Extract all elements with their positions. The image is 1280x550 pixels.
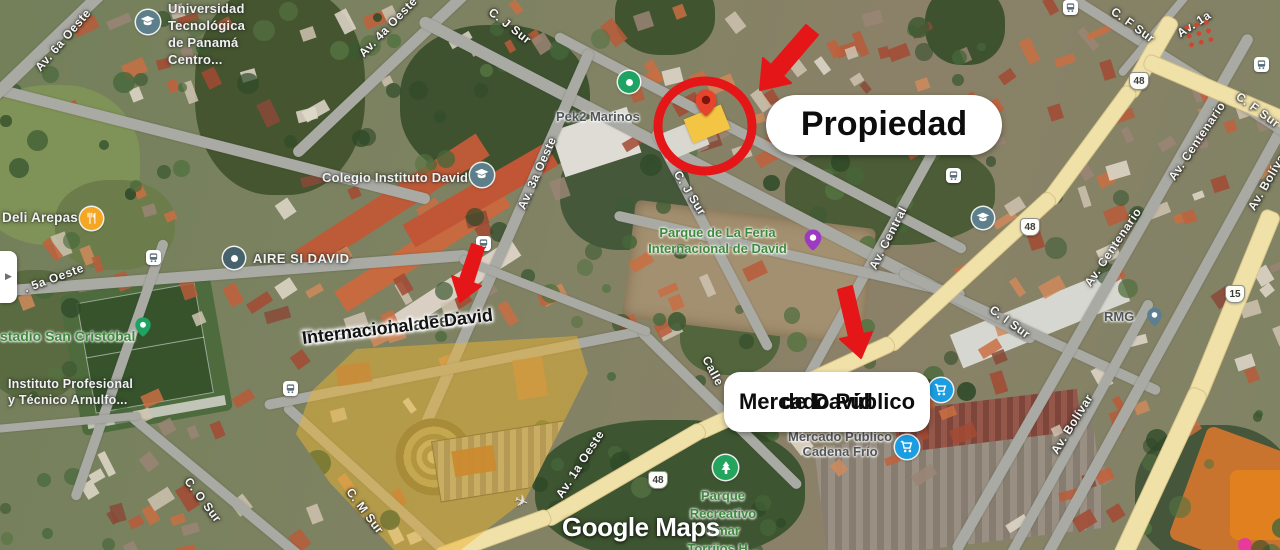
poi-line: Centro... (168, 51, 245, 68)
restaurant-icon[interactable] (80, 207, 103, 230)
poi-label-pek2-marinos[interactable]: Pek2 Marinos (556, 109, 640, 124)
bus-stop-icon[interactable] (146, 250, 161, 265)
bus-stop-icon[interactable] (946, 168, 961, 183)
road-segment (1188, 209, 1280, 402)
google-maps-watermark: Google Maps (562, 512, 720, 543)
bus-stop-icon[interactable] (283, 381, 298, 396)
property-pin-icon (691, 83, 721, 123)
poi-label-rmg[interactable]: RMG (1104, 309, 1134, 324)
shopping-cart-icon[interactable] (895, 435, 919, 459)
bus-stop-icon[interactable] (1063, 0, 1078, 15)
propiedad-label: Propiedad (801, 105, 967, 144)
poi-label-instituto-profesional[interactable]: Instituto Profesional y Técnico Arnulfo.… (8, 376, 133, 408)
mercado-line: de David (781, 389, 873, 414)
school-icon[interactable] (136, 10, 160, 34)
poi-label-aire-si-david[interactable]: AIRE SI DAVID (253, 251, 350, 266)
rmg-pin-icon[interactable] (1144, 303, 1165, 331)
school-icon[interactable] (972, 207, 994, 229)
school-icon[interactable] (470, 163, 494, 187)
poi-line: Cadena Frío (770, 444, 910, 459)
poi-line: Instituto Profesional (8, 376, 133, 392)
poi-line: Universidad (168, 0, 245, 17)
poi-line: Internacional de David (630, 241, 805, 257)
place-dot-icon[interactable] (618, 71, 640, 93)
route-48-shield: 48 (648, 471, 668, 489)
propiedad-label-box: Propiedad (766, 95, 1002, 155)
poi-label-cadena-frio[interactable]: Mercado Público Cadena Frío (770, 429, 910, 459)
poi-label-universidad[interactable]: Universidad Tecnológica de Panamá Centro… (168, 0, 245, 68)
poi-line: Parque (668, 487, 778, 505)
road-segment (0, 411, 140, 434)
bus-stop-icon[interactable] (476, 236, 491, 251)
poi-line: Tecnológica (168, 17, 245, 34)
poi-label-estadio[interactable]: stadio San Cristóbal (0, 328, 135, 344)
fair-building (336, 361, 373, 386)
poi-line: Parque de La Feria (630, 225, 805, 241)
route-48-shield: 48 (1129, 72, 1149, 90)
bus-stop-icon[interactable] (1254, 57, 1269, 72)
poi-label-colegio[interactable]: Colegio Instituto David (322, 170, 468, 185)
place-dot-icon[interactable] (223, 247, 245, 269)
attraction-pin-icon[interactable] (801, 224, 825, 256)
satellite-map-canvas[interactable]: Av. 6a Oeste Av. 4a Oeste C. J Sur C. J … (0, 0, 1280, 550)
poi-line: de Panamá (168, 34, 245, 51)
mercado-label-box: Mercado Público de David (724, 372, 930, 432)
route-48-shield: 48 (1020, 218, 1040, 236)
poi-label-parque-feria[interactable]: Parque de La Feria Internacional de Davi… (630, 225, 805, 257)
fair-building (512, 356, 548, 400)
route-15-shield: 15 (1225, 285, 1245, 303)
road-segment (127, 411, 308, 550)
side-panel-toggle-button[interactable]: ▶ (0, 251, 17, 303)
shopping-cart-icon[interactable] (929, 378, 953, 402)
poi-label-deli-arepas[interactable]: Deli Arepas (2, 210, 78, 225)
road-segment (1042, 84, 1138, 207)
poi-line: y Técnico Arnulfo... (8, 392, 133, 408)
road-segment (0, 80, 431, 206)
park-tree-icon[interactable] (713, 455, 738, 480)
